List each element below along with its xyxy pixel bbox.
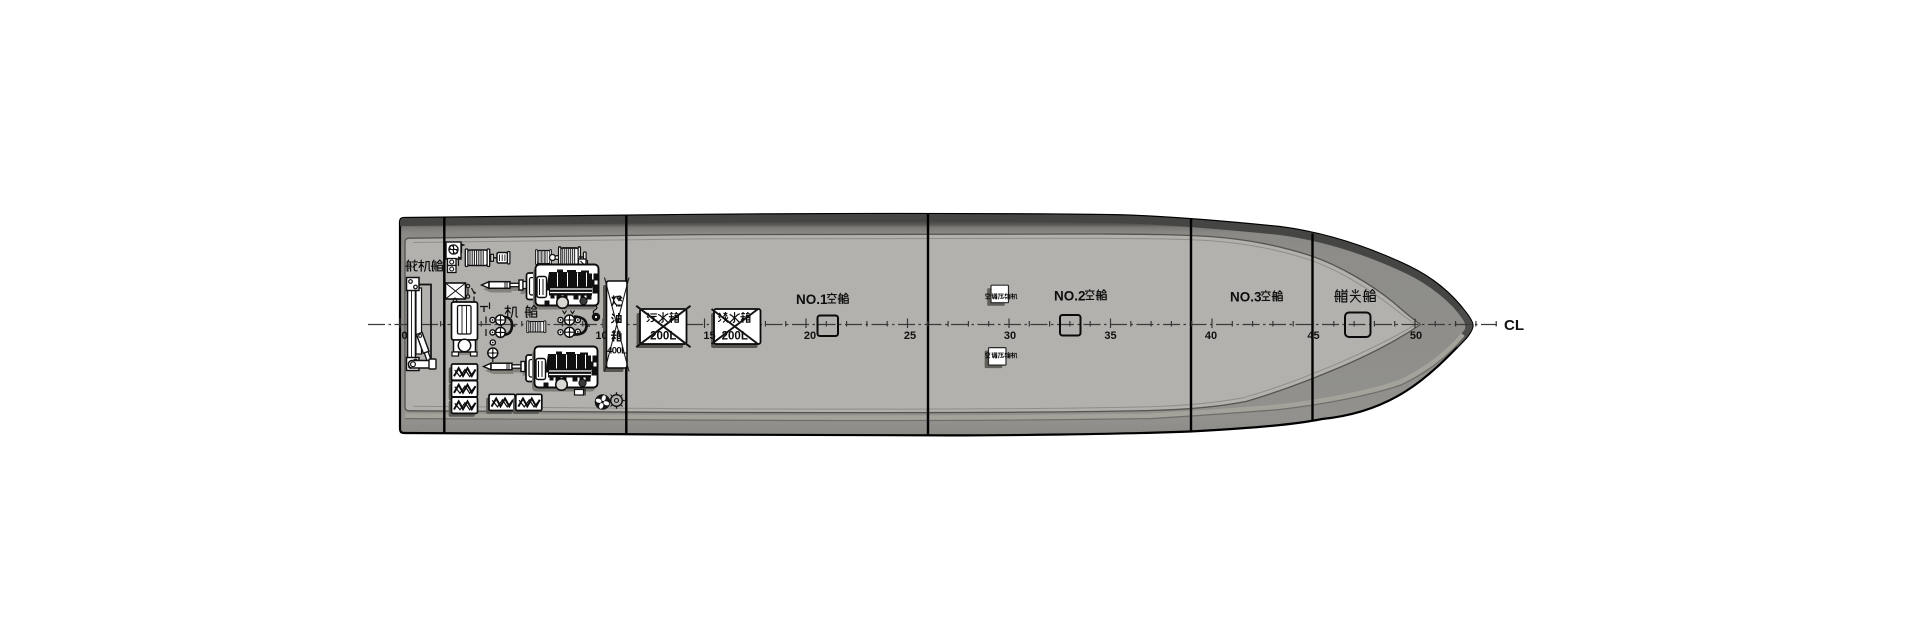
svg-text:20: 20 bbox=[804, 330, 816, 342]
svg-text:NO.1: NO.1 bbox=[796, 292, 828, 307]
svg-text:NO.2: NO.2 bbox=[1054, 289, 1086, 304]
svg-text:400L: 400L bbox=[607, 346, 627, 357]
svg-text:30: 30 bbox=[1004, 330, 1016, 342]
svg-text:200L: 200L bbox=[722, 331, 748, 343]
svg-text:40: 40 bbox=[1205, 330, 1217, 342]
svg-text:15: 15 bbox=[703, 330, 715, 342]
svg-text:200L: 200L bbox=[650, 331, 676, 343]
svg-text:50: 50 bbox=[1410, 330, 1422, 342]
svg-text:25: 25 bbox=[904, 330, 916, 342]
svg-text:10: 10 bbox=[595, 330, 607, 342]
svg-text:35: 35 bbox=[1104, 330, 1116, 342]
svg-text:0: 0 bbox=[401, 330, 407, 342]
svg-text:NO.3: NO.3 bbox=[1230, 290, 1262, 305]
svg-text:45: 45 bbox=[1307, 330, 1319, 342]
svg-text:CL: CL bbox=[1504, 317, 1524, 334]
